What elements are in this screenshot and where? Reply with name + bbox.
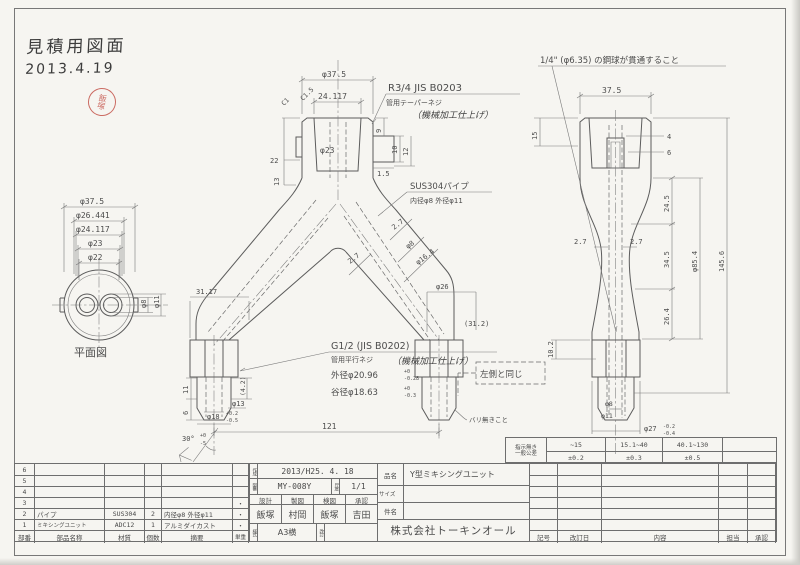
part-name: ミキシングユニット (35, 519, 105, 530)
rev-cell (602, 497, 719, 508)
company-name: 株式会社トーキンオール (377, 519, 530, 542)
tolerance-upper: +0 (200, 433, 206, 439)
drawing-date: 2013/H25. 4. 18 (257, 463, 378, 479)
dim-label: 121 (322, 422, 337, 431)
rev-cell (719, 464, 748, 475)
part-name (35, 497, 105, 508)
part-qty (145, 475, 162, 486)
part-note (162, 464, 233, 475)
rev-cell (558, 497, 602, 508)
plan-view-geometry (52, 203, 168, 352)
side-view-geometry (580, 110, 651, 455)
part-note: 内径φ8 外径φ11 (162, 508, 233, 519)
dim-label: 10.2 (547, 341, 555, 358)
dim-label: 13 (273, 178, 281, 186)
rev-cell (719, 508, 748, 519)
part-qty: 1 (145, 519, 162, 530)
dim-label: φ11 (153, 295, 161, 308)
dim-label: φ23 (320, 146, 335, 155)
part-material (105, 464, 145, 475)
rev-cell (530, 475, 558, 486)
dim-label: 10 (391, 146, 399, 154)
part-weight (233, 486, 249, 497)
dim-label: 2.7 (346, 252, 361, 266)
dim-label: 2.7 (574, 238, 587, 246)
part-note (162, 475, 233, 486)
ball-note: 1/4" (φ6.35) の鋼球が貫通すること (540, 55, 679, 66)
part-name-label: 品名 (377, 463, 404, 486)
dim-label: 11 (182, 386, 190, 394)
part-qty (145, 497, 162, 508)
dim-label: φ8 (140, 300, 148, 308)
dim-label: φ24.117 (76, 225, 110, 234)
part-material: ADC12 (105, 519, 145, 530)
dim-label: φ27 (644, 425, 657, 433)
part-material (105, 497, 145, 508)
rev-header-date: 改訂日 (558, 530, 602, 543)
paper-edge-right (791, 0, 800, 565)
thread-note-g-line2: 管用平行ネジ (331, 355, 373, 364)
dim-label: φ8 (605, 400, 613, 408)
tolerance-lower: -0.3 (404, 393, 416, 399)
rev-cell (558, 464, 602, 475)
role-name-approve: 吉田 (345, 504, 378, 524)
thread-note-r-line2: 管用テーパーネジ (386, 98, 442, 107)
part-note: アルミダイカスト (162, 519, 233, 530)
angle-label: 30° (182, 435, 195, 443)
size-label: サイズ (377, 485, 404, 503)
rev-cell (748, 497, 776, 508)
part-no: 2 (15, 508, 35, 519)
rev-cell (558, 508, 602, 519)
chamfer-label: C1 (280, 96, 291, 107)
rev-cell (602, 464, 719, 475)
pipe-note-line1: SUS304パイプ (410, 182, 469, 192)
dim-label: φ85.4 (691, 251, 699, 272)
rev-cell (602, 519, 719, 530)
dim-label: 37.5 (602, 86, 621, 95)
rev-cell (558, 519, 602, 530)
rev-cell (530, 508, 558, 519)
pipe-note-line2: 内径φ8 外径φ11 (410, 196, 463, 205)
rev-cell (530, 486, 558, 497)
tolerance-upper: -0.2 (663, 424, 675, 430)
part-name (35, 486, 105, 497)
tolerance-upper: +0 (404, 369, 410, 375)
thread-note-r-line3: （機械加工仕上げ） (412, 110, 493, 121)
front-view-annotations: R3/4 JIS B0203 管用テーパーネジ （機械加工仕上げ） SUS304… (240, 83, 545, 424)
scale-value: 1/1 (339, 478, 378, 495)
drawing-number: MY-008Y (257, 478, 332, 495)
thread-od-label: 外径φ20.96 (331, 370, 378, 381)
dim-label: (4.2) (239, 376, 247, 396)
same-as-left-note: 左側と同じ (480, 369, 523, 380)
part-material (105, 486, 145, 497)
tolerance-upper: +0 (404, 386, 410, 392)
rev-header-charge: 担当 (719, 530, 748, 543)
part-qty: 2 (145, 508, 162, 519)
thread-note-g-line1: G1/2 (JIS B0202) (331, 341, 409, 352)
role-name-draft: 村岡 (281, 504, 314, 524)
dim-label: φ16.4 (414, 248, 436, 267)
part-weight: ・ (233, 497, 249, 508)
plan-view-title: 平面図 (74, 346, 107, 359)
dim-label: 26.4 (663, 308, 671, 325)
dim-label: 34.5 (663, 251, 671, 268)
size-value-empty (403, 485, 530, 503)
rev-header-approve: 承認 (748, 530, 776, 543)
note-date: 2013.4.19 (25, 60, 126, 78)
tolerance-label: 指示無き 一般公差 (506, 438, 547, 464)
dim-label: 6 (667, 149, 671, 157)
rev-cell (748, 508, 776, 519)
dim-label: φ8 (404, 239, 416, 250)
rev-cell (719, 486, 748, 497)
dim-label: φ18 (207, 413, 220, 421)
part-name: パイプ (35, 508, 105, 519)
part-note (162, 497, 233, 508)
no-burr-note: バリ無きこと (469, 415, 508, 424)
thread-note-r-line1: R3/4 JIS B0203 (388, 83, 462, 94)
dim-label: 31.17 (196, 288, 217, 296)
dim-label: 9 (375, 129, 383, 133)
dim-label: 15 (531, 132, 539, 140)
revision-table: 記号 改訂日 内容 担当 承認 (529, 463, 777, 542)
rev-header-content: 内容 (602, 530, 719, 543)
note-title: 見積用図面 (26, 31, 127, 58)
part-qty (145, 486, 162, 497)
rev-cell (558, 486, 602, 497)
rev-cell (719, 519, 748, 530)
rev-header-symbol: 記号 (530, 530, 558, 543)
tolerance-lower: -0.28 (404, 376, 419, 382)
tolerance-lower: -0.5 (226, 418, 238, 424)
part-note (162, 486, 233, 497)
dim-label: φ26 (436, 283, 449, 291)
dim-label: (31.2) (464, 320, 489, 328)
rev-cell (748, 486, 776, 497)
dim-label: φ13 (232, 400, 245, 408)
part-weight (233, 464, 249, 475)
part-name (35, 464, 105, 475)
drawing-sheet: φ37.5 φ26.441 φ24.117 φ23 φ22 φ8 φ11 平面図 (0, 0, 800, 565)
part-name (35, 475, 105, 486)
part-weight (233, 475, 249, 486)
part-name-value: Y型ミキシングユニット (403, 463, 530, 486)
parts-table: 6 5 4 3・ 2パイプSUS3042内径φ8 外径φ11・ 1ミキシングユニ… (14, 463, 249, 542)
handwritten-note: 見積用図面 2013.4.19 (25, 31, 127, 78)
tolerance-table: 指示無き 一般公差 ~15 15.1~40 40.1~130 ±0.2 ±0.3… (505, 437, 777, 463)
part-no: 4 (15, 486, 35, 497)
tolerance-lower: -5 (200, 441, 206, 447)
part-weight: ・ (233, 519, 249, 530)
rev-cell (530, 497, 558, 508)
dim-label: φ37.5 (80, 197, 104, 206)
rev-cell (719, 497, 748, 508)
tolerance-range-empty (723, 438, 777, 451)
dim-label: 2.7 (630, 238, 643, 246)
role-name-design: 飯塚 (249, 504, 282, 524)
rev-cell (748, 475, 776, 486)
role-name-check: 飯塚 (313, 504, 346, 524)
rev-cell (748, 464, 776, 475)
dim-label: 2.7 (390, 218, 405, 232)
part-no: 3 (15, 497, 35, 508)
dim-label: φ11 (601, 412, 613, 420)
dim-label: φ22 (88, 253, 103, 262)
paper-edge-bottom (0, 558, 800, 565)
part-no: 1 (15, 519, 35, 530)
rev-cell (602, 508, 719, 519)
parts-header-material: 材質 (105, 530, 145, 543)
tolerance-range: ~15 (547, 438, 606, 451)
parts-header-weight: 単重 (233, 530, 249, 543)
rev-cell (558, 475, 602, 486)
rev-cell (602, 475, 719, 486)
revision-value-empty (324, 523, 378, 542)
tolerance-range: 15.1~40 (606, 438, 663, 451)
dim-label: φ37.5 (322, 70, 346, 79)
parts-header-no: 部番 (15, 530, 35, 543)
parts-header-qty: 個数 (145, 530, 162, 543)
rev-cell (530, 519, 558, 530)
parts-header-name: 部品名称 (35, 530, 105, 543)
dim-label: φ23 (88, 239, 103, 248)
part-qty (145, 464, 162, 475)
tolerance-range: 40.1~130 (663, 438, 723, 451)
rev-cell (748, 519, 776, 530)
parts-header-note: 摘要 (162, 530, 233, 543)
thread-note-g-line2b: （機械加工仕上げ） (392, 356, 473, 367)
format-value: A3横 (257, 523, 317, 542)
dim-label: 1.5 (377, 170, 390, 178)
tolerance-label-line2: 一般公差 (515, 451, 537, 457)
chamfer-label: C1.5 (299, 86, 316, 103)
subject-value-empty (403, 502, 530, 520)
subject-label: 件名 (377, 502, 404, 520)
dim-label: 12 (402, 148, 410, 156)
dim-label: 24.5 (663, 195, 671, 212)
dim-label: 145.6 (718, 251, 726, 272)
dim-label: 6 (182, 411, 190, 415)
part-weight: ・ (233, 508, 249, 519)
thread-root-label: 谷径φ18.63 (331, 387, 378, 398)
rev-cell (530, 464, 558, 475)
rev-cell (602, 486, 719, 497)
dim-label: φ26.441 (76, 211, 110, 220)
part-no: 6 (15, 464, 35, 475)
part-material: SUS304 (105, 508, 145, 519)
part-material (105, 475, 145, 486)
rev-cell (719, 475, 748, 486)
dim-label: 4 (667, 133, 671, 141)
dim-label: 24.117 (318, 92, 347, 101)
tolerance-upper: +0.2 (226, 411, 238, 417)
dim-label: 22 (270, 157, 278, 165)
part-no: 5 (15, 475, 35, 486)
